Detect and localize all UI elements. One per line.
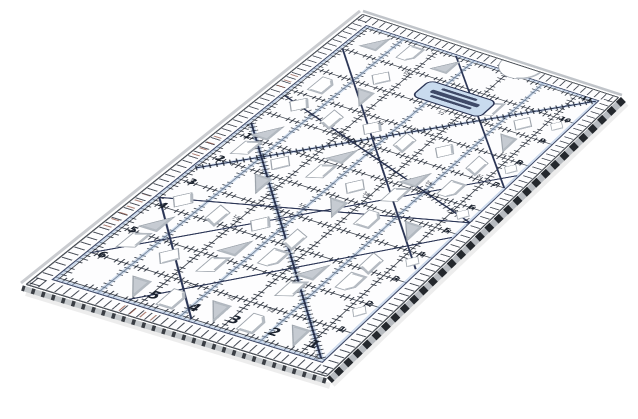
product-photo: 123456543211234567891011¼½¾¼½¾¼½¾¼½¾ — [0, 0, 638, 419]
